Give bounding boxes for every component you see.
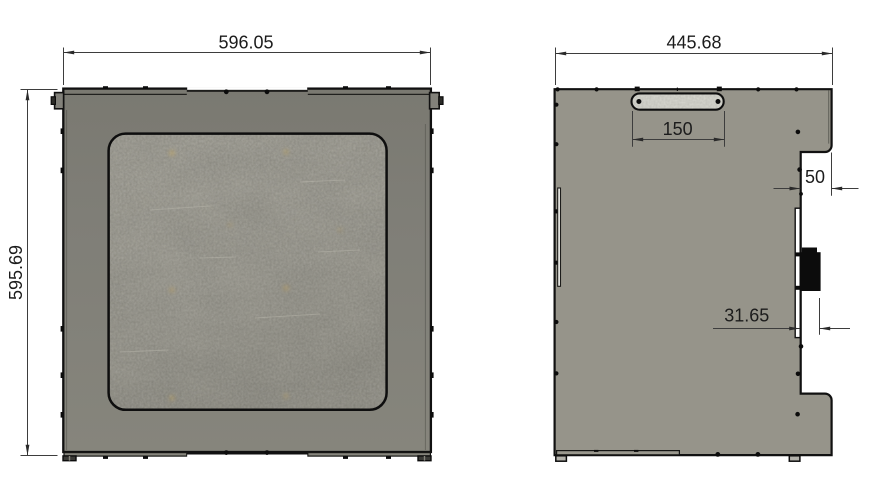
svg-text:50: 50 — [805, 167, 825, 187]
svg-text:445.68: 445.68 — [666, 32, 721, 52]
svg-text:150: 150 — [663, 119, 693, 139]
svg-text:596.05: 596.05 — [218, 33, 273, 53]
svg-text:31.65: 31.65 — [724, 306, 769, 326]
svg-text:595.69: 595.69 — [6, 245, 26, 300]
